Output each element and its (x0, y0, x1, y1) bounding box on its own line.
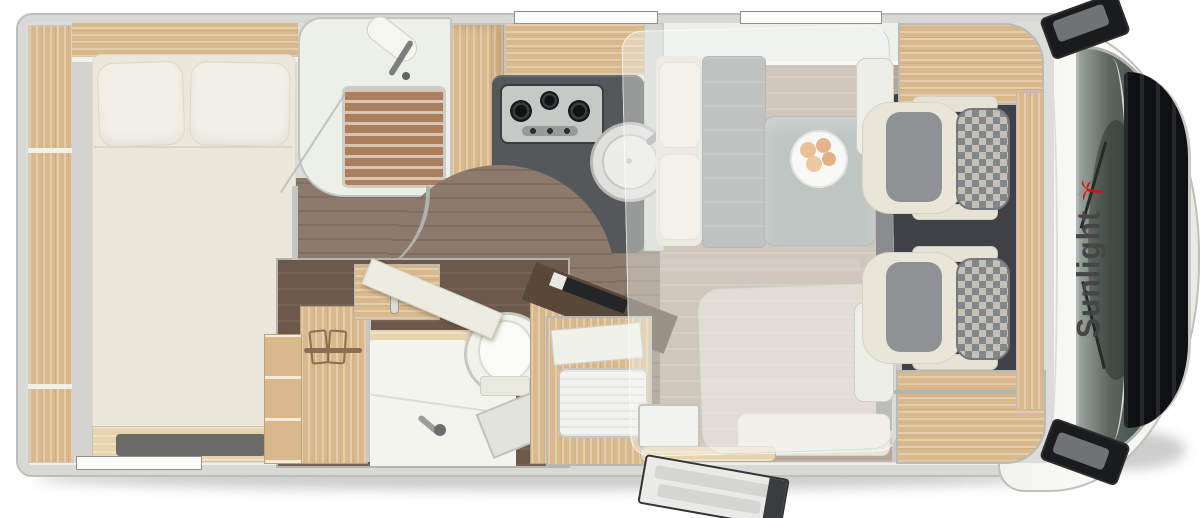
palm-icon (1077, 178, 1103, 204)
window-top-right (740, 11, 882, 24)
toilet-base (480, 376, 530, 396)
basin-drain-dot (434, 424, 446, 436)
seat-center-panel (886, 112, 942, 202)
rear-band-divider (28, 148, 72, 153)
pillow (189, 61, 290, 147)
dashboard-wood-band (1016, 92, 1044, 410)
pillow (97, 61, 186, 148)
window-bottom-rear (76, 456, 202, 470)
shower-drain-dot (402, 72, 410, 80)
hob-burner (568, 100, 590, 122)
clothes-hanger (327, 329, 347, 364)
bed-foot-mat (116, 434, 266, 456)
hob-burner (540, 91, 559, 110)
bed-side-trim (72, 42, 92, 456)
rear-wardrobe-band (28, 25, 74, 463)
bedside-cubby-shelf (264, 334, 302, 464)
brand-wordmark: Sunlight (1072, 210, 1109, 338)
shower-teak-floor (342, 86, 446, 188)
cab-seat-driver (860, 96, 1010, 218)
brand-logo: Sunlight (1072, 153, 1108, 363)
seat-center-panel (886, 262, 942, 352)
seat-headrest-checker (956, 258, 1010, 360)
window-top-left (514, 11, 658, 24)
cab-seat-passenger (860, 246, 1010, 368)
seat-headrest-checker (956, 108, 1010, 210)
bedroom-partition-wall (292, 186, 298, 260)
front-grille (1124, 72, 1191, 428)
rear-band-divider (28, 384, 72, 389)
cab-shelf-rail (880, 390, 1020, 394)
hob-controls (522, 126, 578, 136)
hob-burner (510, 100, 532, 122)
floorplan-canvas: Sunlight (0, 0, 1200, 518)
